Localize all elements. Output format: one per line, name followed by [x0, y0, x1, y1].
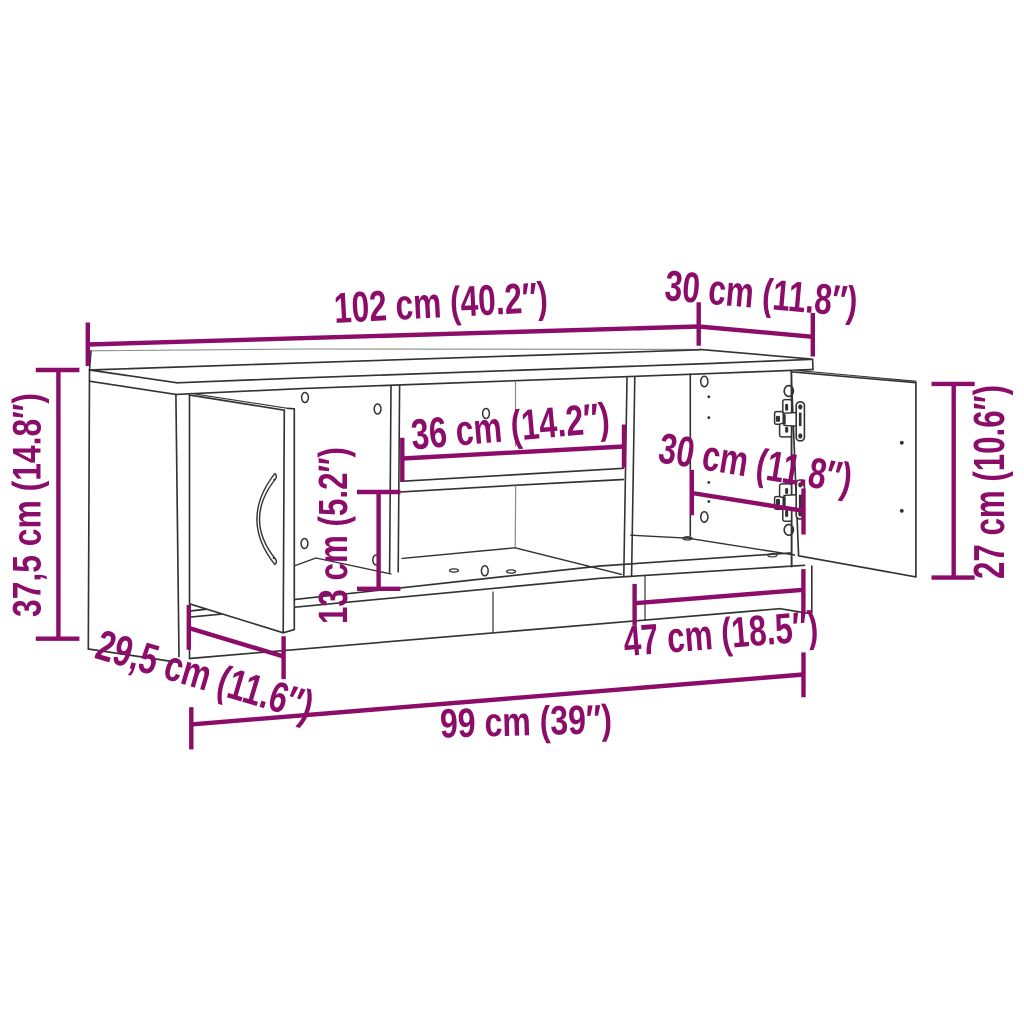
svg-text:27 cm (10.6″): 27 cm (10.6″): [965, 385, 1014, 579]
svg-text:99 cm (39″): 99 cm (39″): [439, 696, 612, 746]
svg-text:37,5 cm (14.8″): 37,5 cm (14.8″): [6, 393, 50, 617]
svg-text:13 cm (5.2″): 13 cm (5.2″): [310, 447, 356, 624]
